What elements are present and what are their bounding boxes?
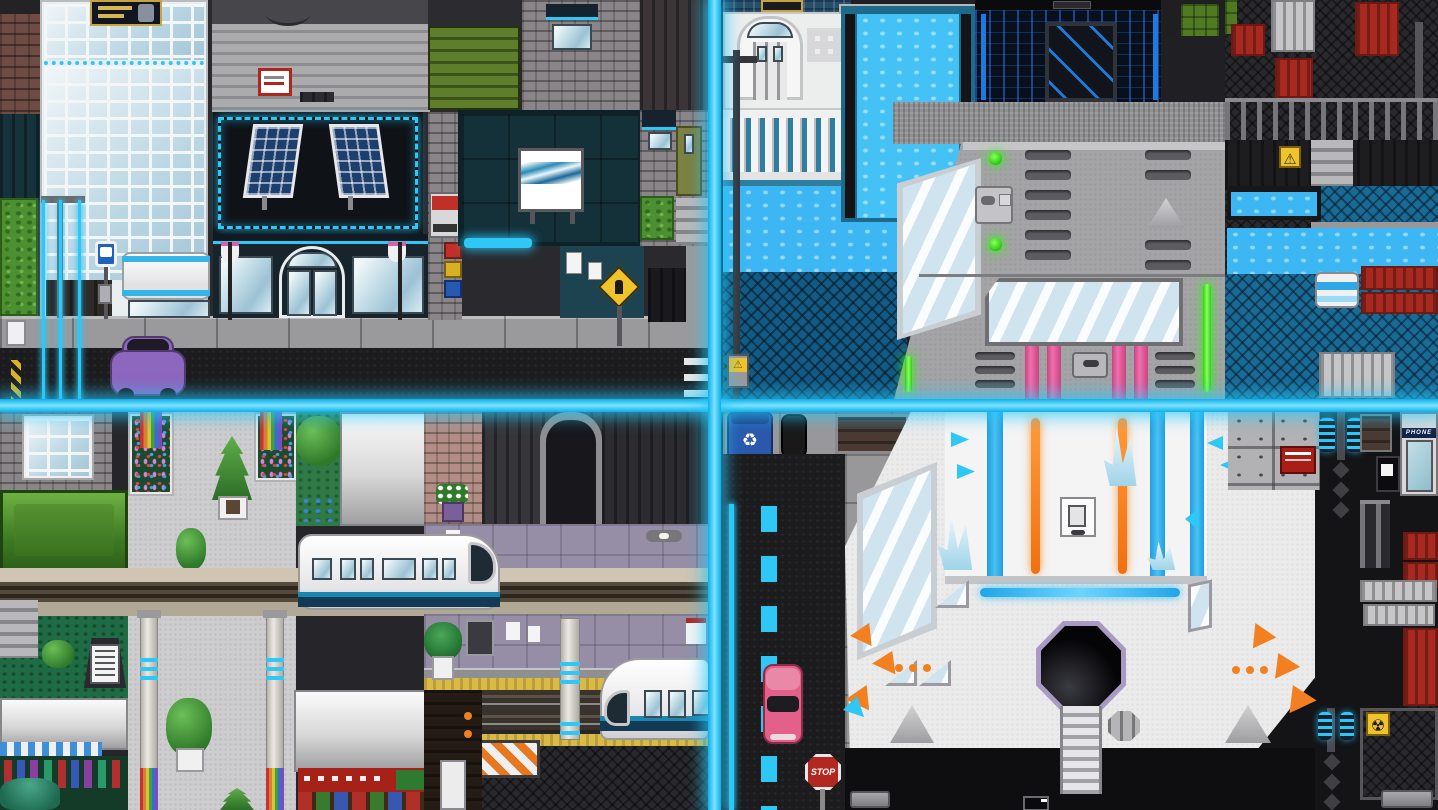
bar-fence (1225, 98, 1438, 140)
far-wall (602, 412, 710, 524)
pillar-blue-stripes (560, 662, 580, 684)
orange-dot (895, 664, 903, 672)
rainbow-banner (140, 412, 162, 448)
train-window (422, 558, 438, 580)
white-canopy (340, 412, 426, 526)
vent-slat (1155, 366, 1195, 374)
car-windshield (767, 696, 799, 712)
construction-barrier (474, 740, 540, 778)
vending-machine-small[interactable] (444, 261, 462, 278)
train-window (382, 558, 416, 580)
billboard-text-line (98, 14, 124, 18)
sign-green-panel (396, 770, 426, 790)
hedge (0, 198, 38, 316)
cable-hook (266, 2, 310, 26)
orange-light-rod (1118, 418, 1127, 574)
tent-fold (14, 504, 114, 556)
vent-slat (975, 380, 1015, 388)
vending-slot (433, 224, 457, 232)
vending-machine-small[interactable] (444, 280, 462, 298)
apartment-window (26, 418, 90, 476)
stall-canopy (294, 690, 426, 772)
willow-tree (0, 778, 60, 810)
pillar-rainbow-base (266, 768, 284, 810)
poster (566, 252, 582, 274)
blue-flowers (300, 496, 340, 522)
awning-stripe (122, 290, 210, 296)
lamp-light (659, 533, 669, 539)
cyan-edge-line (729, 504, 734, 810)
payphone[interactable] (466, 620, 494, 656)
plant-pot (432, 656, 454, 680)
silver-container (1319, 352, 1395, 398)
cyan-light-bar (980, 588, 1180, 597)
quadrant-canal-facility: ⚠ ⚠ (723, 0, 1438, 403)
crosswalk (684, 358, 710, 402)
rainbow-banner (260, 412, 282, 450)
recycle-icon: ♻ (737, 428, 763, 454)
pole-crossarm (723, 56, 757, 63)
sign-pole (820, 789, 825, 810)
metal-plate (1381, 790, 1433, 808)
vent-slat (1145, 260, 1191, 270)
water-channel (1231, 192, 1317, 216)
vent-slat (1025, 210, 1071, 220)
device-button[interactable] (999, 194, 1011, 206)
tesla-coil (1340, 712, 1354, 740)
vent-slat (1155, 352, 1195, 360)
panel-leg (262, 196, 267, 210)
shrub (176, 528, 206, 570)
led-dot-trim (44, 61, 204, 65)
house-window (552, 24, 592, 50)
window-awning (546, 4, 598, 20)
blue-floor-stripe (1190, 412, 1204, 578)
train-window (668, 690, 686, 718)
device-slot (981, 196, 995, 205)
cyan-beam (42, 200, 45, 403)
orange-dot (1246, 666, 1254, 674)
notice (506, 622, 520, 640)
yard-post (1415, 22, 1423, 102)
black-post-box (781, 414, 807, 458)
notice-line (264, 82, 284, 85)
grate-window (1360, 414, 1392, 452)
coil-pole (1337, 412, 1345, 460)
white-fence (723, 118, 851, 174)
lamp-post (228, 242, 232, 320)
door-pane (287, 270, 311, 316)
device-light (1041, 799, 1047, 802)
train-window (340, 558, 356, 580)
stair-grate (1311, 140, 1353, 190)
notice-red-header (686, 618, 706, 644)
solar-panel (329, 124, 389, 198)
red-container-tall (1403, 628, 1438, 706)
orange-dot (464, 730, 472, 738)
terminal-note (1381, 464, 1393, 476)
striped-awning-edge (0, 742, 102, 756)
pink-stripe (1134, 346, 1148, 402)
gray-wall (686, 246, 710, 322)
door-window (757, 46, 767, 62)
menu-text-lines (95, 650, 115, 678)
green-tile-patch (1181, 4, 1219, 36)
green-status-light (989, 152, 1002, 165)
green-status-light (989, 238, 1002, 251)
chain-link-segment (1324, 774, 1341, 791)
billboard-phone-image (138, 4, 154, 22)
green-light-bar (1203, 284, 1211, 392)
slanted-window-small (1188, 579, 1212, 632)
door-pane (313, 270, 337, 316)
pink-stripe (1112, 346, 1126, 402)
roof-edge-strip (963, 142, 1235, 150)
phone-booth-sign: PHONE (1402, 428, 1436, 438)
kiosk-door[interactable] (440, 760, 466, 810)
orange-light-rod (1031, 418, 1040, 574)
sign-line (1285, 459, 1311, 461)
pedestrian-glyph (615, 280, 623, 294)
silver-container (1363, 604, 1435, 626)
storefront-window (352, 256, 424, 314)
pink-stripe (1047, 346, 1061, 402)
capsule-container (1315, 272, 1359, 308)
stop-sign: STOP (805, 754, 841, 790)
red-container (1355, 2, 1399, 56)
green-light-bar (905, 356, 912, 392)
parking-meter[interactable] (6, 320, 26, 346)
bus-icon (100, 247, 112, 257)
wall-sign (1053, 1, 1091, 9)
slanted-window (863, 470, 931, 652)
door-window (773, 46, 783, 62)
pillar-cap (137, 610, 161, 618)
metal-plate (850, 791, 890, 808)
quadrant-plaza-monorail (0, 412, 710, 810)
panel-leg (348, 196, 353, 210)
pillar-cap (263, 610, 287, 618)
circuit-edge-bar (1153, 14, 1158, 100)
silver-container (1360, 580, 1437, 602)
orange-dot (909, 664, 917, 672)
fence-rail (723, 110, 851, 118)
quadrant-city-street (0, 0, 710, 403)
vent-slat (975, 366, 1015, 374)
dark-wall (428, 0, 520, 28)
vent-slat (1155, 380, 1195, 388)
wave-art-icon (521, 162, 581, 184)
roof-edge (0, 0, 40, 14)
tileset-collage: ⚠ ⚠ (0, 0, 1438, 810)
power-pole (733, 50, 740, 403)
shutter-top (212, 0, 430, 24)
monorail-tunnel (546, 420, 596, 524)
train-navy-band (298, 597, 500, 607)
vent-slat (975, 352, 1015, 360)
bush (42, 640, 74, 668)
sign-line (1285, 452, 1311, 455)
storefront-fascia (213, 234, 429, 244)
tesla-coil (1318, 712, 1332, 740)
door-window (684, 134, 694, 154)
warning-icon: ⚠ (729, 358, 747, 372)
pillar-rainbow-base (140, 768, 158, 810)
poster (588, 262, 602, 280)
car-bumper (770, 734, 796, 740)
hedge (640, 196, 674, 240)
fenced-deep-water (723, 272, 907, 403)
bin-lid (731, 412, 769, 424)
entrance-stairs (1060, 706, 1102, 794)
window-lattice (807, 28, 843, 62)
vending-screen (432, 196, 458, 210)
red-container (1275, 58, 1313, 98)
notice-line (264, 76, 284, 79)
car-hood (766, 668, 800, 690)
orange-dot (1260, 666, 1268, 674)
train-window (442, 558, 456, 580)
flower-basket (388, 246, 406, 262)
door-fanlight (287, 252, 337, 268)
cyan-beam (78, 200, 81, 403)
cyan-beam (59, 200, 62, 403)
green-tiled-roof (428, 26, 520, 110)
cyan-dashed-lane-line (761, 506, 777, 810)
textured-wall-band (893, 102, 1233, 144)
entry-steps (676, 198, 710, 244)
lamp-post (398, 242, 402, 320)
vent-slat (1025, 170, 1071, 180)
train-window (360, 558, 374, 580)
solar-panel (243, 124, 303, 198)
pillar-blue-stripes (560, 722, 580, 740)
round-tree (296, 416, 342, 466)
glow-awning (464, 238, 532, 248)
red-container (1361, 266, 1438, 290)
booth-glass-door[interactable] (1406, 440, 1433, 492)
train-window (312, 558, 332, 580)
vent-slat (1025, 150, 1071, 160)
large-window (985, 278, 1183, 346)
orange-dot (464, 712, 472, 720)
capsule-stripe (1317, 282, 1357, 290)
door-transom (747, 22, 793, 38)
vent-grille (300, 92, 334, 102)
terminal-slot (1071, 530, 1085, 535)
vent-slat (1145, 150, 1191, 160)
purple-pot (442, 502, 464, 522)
road (0, 348, 710, 403)
brick-building (0, 0, 40, 114)
chain-link-segment (1333, 502, 1350, 519)
hazard-post (11, 360, 21, 403)
pool-pillar (845, 14, 855, 218)
billboard-text-line (98, 6, 132, 10)
planter-soil (226, 500, 240, 514)
dark-building (640, 0, 710, 112)
track-stairs (0, 600, 38, 658)
ticket-box[interactable] (98, 284, 112, 304)
vent-slat (1025, 250, 1071, 260)
red-container (1361, 292, 1438, 314)
quadrant-scifi-facility: ♻ STOP (723, 412, 1438, 810)
vent-slat (1025, 190, 1071, 200)
orange-dot (1232, 666, 1240, 674)
chain-link-segment (1324, 794, 1341, 810)
vent-slat (1025, 230, 1071, 240)
sign-pole (617, 306, 622, 346)
vent-slat (1145, 240, 1191, 250)
billboard-leg (530, 210, 535, 224)
tree-planter (176, 748, 204, 772)
house-window (648, 132, 672, 150)
train-window (644, 690, 662, 718)
pillar-blue-stripes (140, 658, 158, 682)
stop-sign-label: STOP (811, 767, 835, 777)
octagon-grate (1108, 711, 1140, 741)
room-edge (945, 576, 1207, 584)
terminal-screen (1068, 505, 1086, 527)
chain-link-segment (1333, 462, 1350, 479)
awning-stripe (122, 256, 210, 262)
shop-counter-window (128, 300, 210, 318)
vertical-divider (708, 0, 721, 810)
pink-stripe (1025, 346, 1039, 402)
storage-rack (1360, 500, 1390, 568)
warning-icon: ⚠ (1279, 146, 1301, 168)
barred-window (648, 268, 686, 322)
gold-plaque (761, 0, 803, 12)
fence-rail (723, 172, 851, 180)
chain-link-segment (1333, 482, 1350, 499)
red-container (1231, 24, 1265, 56)
teal-panel-wall (0, 114, 40, 198)
blue-floor-stripe (987, 412, 1003, 578)
silver-container (1271, 0, 1315, 52)
circuit-edge-bar (981, 14, 986, 100)
notice (528, 626, 540, 642)
face-seam (919, 274, 1235, 277)
orange-dot (923, 664, 931, 672)
vent-slat (1145, 170, 1191, 180)
capsule-stripe (1317, 296, 1357, 302)
chain-link-segment (1324, 754, 1341, 771)
potted-palm (424, 622, 462, 660)
produce-crates[interactable] (298, 792, 426, 810)
flower-planter (436, 484, 468, 504)
radiation-icon: ☢ (1366, 712, 1390, 736)
pillar-blue-stripes (266, 658, 284, 682)
handle-slot (1083, 360, 1099, 367)
sign-script (304, 776, 386, 781)
red-container (1403, 532, 1438, 560)
tower-windows (44, 66, 204, 280)
tesla-coil (1319, 418, 1335, 452)
window-awning (642, 110, 676, 130)
tech-hatch-door[interactable] (1045, 22, 1117, 102)
billboard-leg (570, 210, 575, 224)
sidewalk (0, 316, 710, 350)
slanted-window (903, 164, 975, 334)
